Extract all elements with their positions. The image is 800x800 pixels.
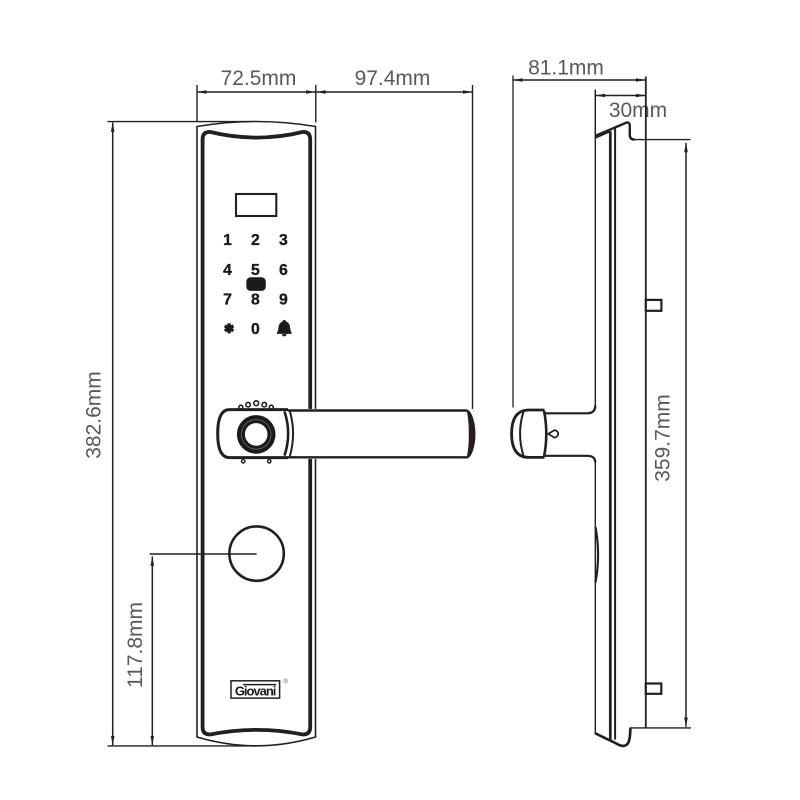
svg-text:97.4mm: 97.4mm — [355, 67, 431, 90]
svg-text:30mm: 30mm — [609, 99, 667, 122]
svg-text:72.5mm: 72.5mm — [221, 67, 297, 90]
svg-text:6: 6 — [279, 262, 288, 279]
svg-text:81.1mm: 81.1mm — [528, 57, 604, 80]
svg-text:®: ® — [284, 679, 289, 686]
svg-text:5: 5 — [251, 262, 260, 279]
svg-text:117.8mm: 117.8mm — [124, 602, 147, 688]
svg-text:1: 1 — [223, 232, 232, 249]
svg-text:Giovani: Giovani — [235, 683, 277, 698]
svg-text:359.7mm: 359.7mm — [652, 394, 675, 482]
svg-text:382.6mm: 382.6mm — [83, 371, 106, 459]
svg-text:7: 7 — [223, 292, 232, 309]
svg-text:9: 9 — [279, 292, 288, 309]
svg-text:4: 4 — [223, 262, 232, 279]
svg-text:3: 3 — [279, 232, 288, 249]
svg-text:2: 2 — [251, 232, 260, 249]
svg-text:0: 0 — [251, 321, 260, 338]
svg-text:8: 8 — [251, 292, 260, 309]
